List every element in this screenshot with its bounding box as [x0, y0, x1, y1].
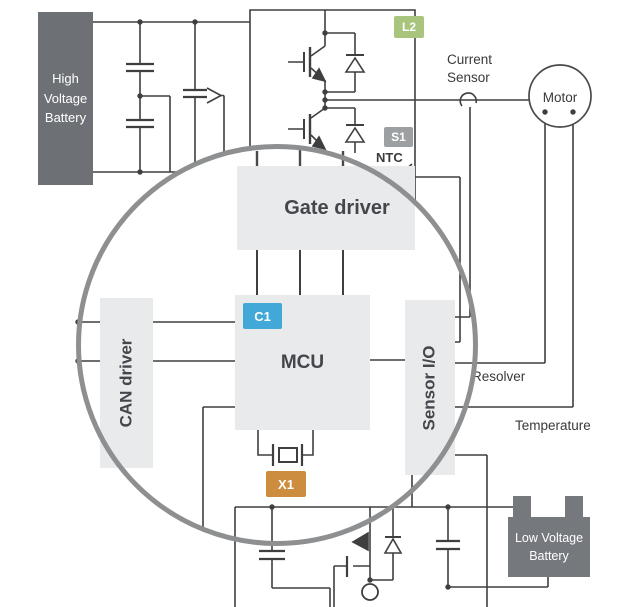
dc-link-wires	[93, 22, 250, 172]
mcu-label: MCU	[281, 352, 324, 374]
motor-label: Motor	[530, 89, 590, 107]
lv-battery-terminal	[565, 496, 583, 518]
can-driver-block: CAN driver	[100, 298, 153, 468]
badge-c1: C1	[243, 303, 282, 329]
hv-battery-label: High Voltage Battery	[41, 69, 91, 128]
temperature-label: Temperature	[515, 417, 591, 435]
sensor-io-label: Sensor I/O	[420, 345, 440, 430]
lv-battery-terminal	[513, 496, 531, 518]
gate-driver-block: Gate driver	[237, 166, 415, 250]
can-driver-label: CAN driver	[117, 339, 137, 428]
resolver-label: Resolver	[472, 368, 525, 386]
inverter-system-diagram: High Voltage Battery Gate driver MCU CAN…	[0, 0, 644, 607]
lv-battery-block: Low Voltage Battery	[508, 517, 590, 577]
badge-x1: X1	[266, 471, 306, 497]
gate-driver-label: Gate driver	[262, 197, 390, 220]
badge-s1: S1	[384, 127, 413, 147]
ntc-label: NTC	[376, 149, 403, 167]
sensor-io-block: Sensor I/O	[405, 300, 455, 475]
hv-battery-block: High Voltage Battery	[38, 12, 93, 185]
lv-battery-label: Low Voltage Battery	[510, 529, 588, 565]
current-sensor-label: Current Sensor	[447, 51, 509, 87]
badge-l2: L2	[394, 16, 424, 38]
